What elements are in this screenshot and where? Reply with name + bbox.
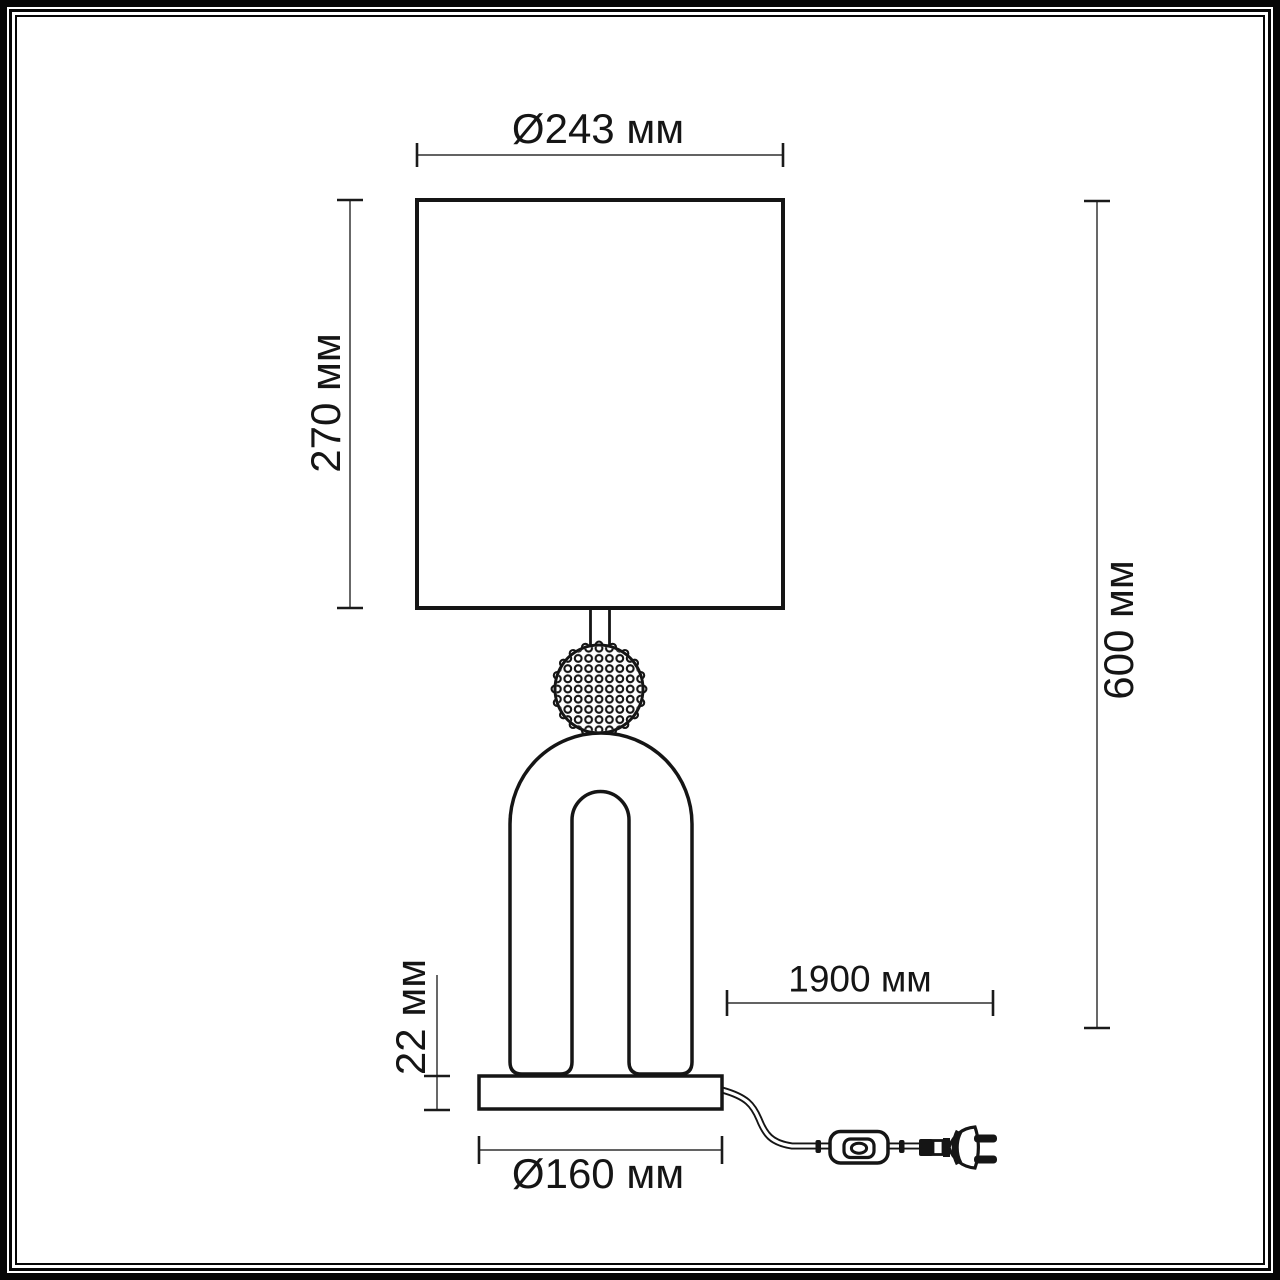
plug-pin [974,1156,997,1164]
plug-pin [974,1135,997,1143]
inline-switch [830,1132,888,1164]
cord-grommet [899,1140,905,1153]
lamp-technical-drawing [0,0,1280,1280]
lamp-arch-body [510,733,692,1074]
lamp-base [479,1076,722,1109]
power-plug [919,1127,997,1168]
dim-label-shade-diameter: Ø243 мм [512,108,684,150]
plug-strain-relief [919,1139,933,1156]
dim-label-shade-height: 270 мм [305,333,347,473]
dim-label-base-diameter: Ø160 мм [512,1153,684,1195]
lamp-decorative-ball [552,642,647,737]
drawing-canvas: Ø243 мм 270 мм 600 мм 22 мм Ø160 мм 1900… [0,0,1280,1280]
dim-label-total-height: 600 мм [1098,560,1140,700]
dim-label-base-height: 22 мм [390,959,432,1075]
plug-collar [933,1141,943,1155]
switch-button [851,1143,866,1153]
plug-body-band [955,1132,959,1164]
cord-grommet [816,1140,822,1153]
lamp-shade [417,200,783,608]
power-cord [722,1090,920,1153]
dim-label-cord-length: 1900 мм [788,961,931,998]
